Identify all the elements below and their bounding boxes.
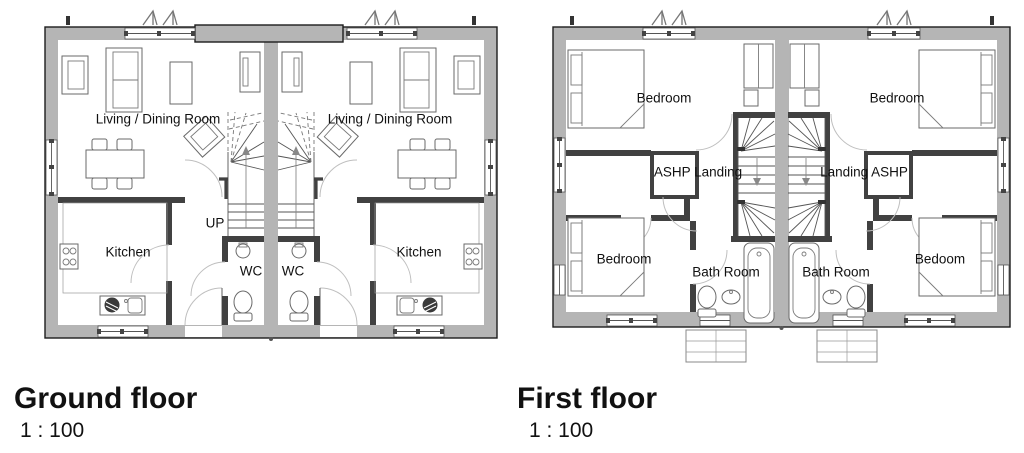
stair-up-label: UP: [206, 216, 225, 231]
ground-floor-plan: Living / Dining Room Living / Dining Roo…: [45, 11, 497, 341]
ground-window-top-left: [124, 28, 195, 39]
first-window-left-lower: [554, 265, 565, 295]
basin: [722, 290, 740, 304]
room-label-landing-left: ASHP Landing: [654, 165, 742, 180]
pipe-marker: [990, 16, 994, 25]
hob: [60, 244, 78, 269]
vent-icon: [652, 11, 686, 25]
room-label-living-right: Living / Dining Room: [328, 112, 453, 127]
vent-icon: [365, 11, 399, 25]
kitchen-sink: [100, 296, 145, 315]
ground-window-left-wall: [46, 139, 57, 196]
room-label-bedroom-bottom-left: Bedroom: [597, 252, 652, 267]
room-label-landing-right: Landing ASHP: [820, 165, 908, 180]
entrance-canopy-left: [686, 330, 746, 362]
armchair: [62, 56, 88, 94]
tv-unit: [240, 52, 260, 92]
double-bed: [568, 50, 644, 128]
ground-floor-title: Ground floor: [14, 382, 198, 415]
vent-icon: [143, 11, 177, 25]
first-floor-title: First floor: [517, 382, 657, 415]
room-label-bedroom-top-right: Bedroom: [870, 91, 925, 106]
first-window-bottom-left: [606, 315, 657, 326]
vent-icon: [877, 11, 911, 25]
party-wall-marker: [780, 326, 784, 330]
ground-right-dwelling-floor: [278, 40, 484, 325]
room-label-wc-left: WC: [240, 264, 263, 279]
first-window-top-right: [867, 28, 920, 39]
party-wall-marker: [269, 337, 273, 341]
ground-window-right-wall: [485, 139, 496, 196]
bathtub: [744, 243, 774, 323]
pipe-marker: [66, 16, 70, 25]
first-window-top-left: [642, 28, 695, 39]
first-window-right-upper: [998, 137, 1009, 193]
toilet: [698, 286, 716, 317]
first-window-left-upper: [554, 137, 565, 193]
floor-plan-sheet: Living / Dining Room Living / Dining Roo…: [0, 0, 1024, 453]
entrance-canopy-right: [817, 330, 877, 362]
first-window-bottom-right: [904, 315, 955, 326]
room-label-bath-left: Bath Room: [692, 265, 760, 280]
plans-canvas: Living / Dining Room Living / Dining Roo…: [0, 0, 1024, 453]
pipe-marker: [472, 16, 476, 25]
ground-top-center-wall: [195, 25, 343, 42]
first-window-right-lower: [998, 265, 1009, 295]
ground-window-bottom-left: [97, 326, 148, 337]
sofa: [106, 48, 142, 112]
ground-window-top-right: [346, 28, 417, 39]
ground-floor-scale: 1 : 100: [20, 419, 84, 442]
room-label-living-left: Living / Dining Room: [96, 112, 221, 127]
room-label-kitchen-left: Kitchen: [105, 245, 150, 260]
ground-window-bottom-right: [393, 326, 444, 337]
wc-toilet: [234, 291, 252, 321]
room-label-bedroom-bottom-right: Bedoom: [915, 252, 965, 267]
pipe-marker: [570, 16, 574, 25]
room-label-bath-right: Bath Room: [802, 265, 870, 280]
room-label-wc-right: WC: [282, 264, 305, 279]
ground-left-dwelling-floor: [58, 40, 264, 325]
room-label-bedroom-top-left: Bedroom: [637, 91, 692, 106]
room-label-kitchen-right: Kitchen: [396, 245, 441, 260]
first-floor-plan: Bedroom Bedroom ASHP Landing Landing ASH…: [553, 11, 1010, 362]
coffee-table: [170, 62, 192, 104]
first-floor-scale: 1 : 100: [529, 419, 593, 442]
